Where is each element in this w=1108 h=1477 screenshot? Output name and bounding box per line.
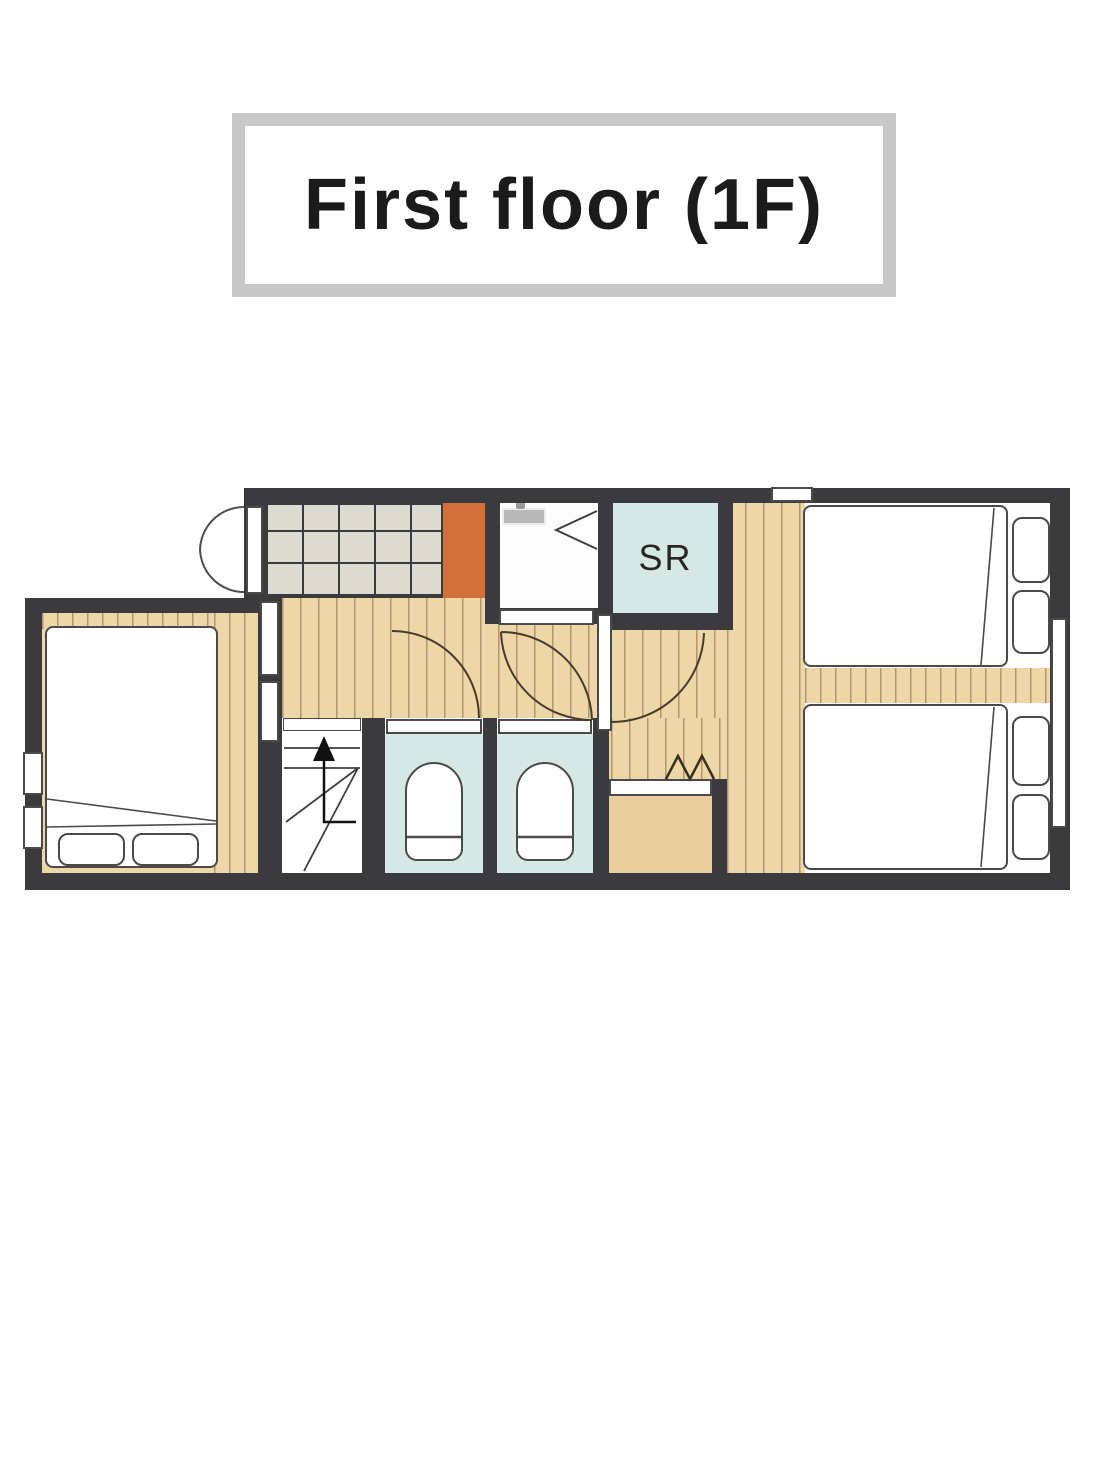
stairs-up-arrow-icon xyxy=(313,736,356,822)
entrance-doors-icon xyxy=(200,507,244,592)
plan-linework xyxy=(0,0,1108,1477)
stairs-icon xyxy=(284,748,360,871)
blanket-fold-lines xyxy=(47,508,994,867)
folding-door-icon xyxy=(556,511,597,549)
door-swing-arcs xyxy=(392,631,704,722)
closet-folding-door-icon xyxy=(666,756,714,779)
floor-plan-page: First floor (1F) SR xyxy=(0,0,1108,1477)
